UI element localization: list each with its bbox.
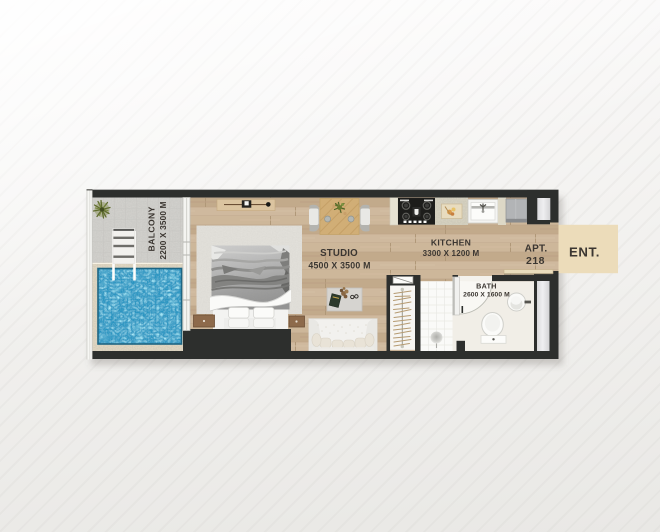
svg-text:KITCHEN: KITCHEN — [431, 238, 471, 248]
svg-text:3300 X 1200 M: 3300 X 1200 M — [423, 249, 480, 258]
svg-text:2200 X 3500 M: 2200 X 3500 M — [159, 201, 168, 259]
svg-text:STUDIO: STUDIO — [320, 248, 358, 259]
svg-text:BATH: BATH — [476, 282, 497, 291]
svg-text:2600 X 1600 M: 2600 X 1600 M — [463, 291, 510, 298]
svg-text:ENT.: ENT. — [569, 245, 600, 260]
svg-text:218: 218 — [526, 255, 545, 267]
svg-text:BALCONY: BALCONY — [147, 206, 157, 251]
svg-text:APT.: APT. — [525, 244, 548, 255]
svg-text:4500 X 3500 M: 4500 X 3500 M — [308, 261, 370, 271]
